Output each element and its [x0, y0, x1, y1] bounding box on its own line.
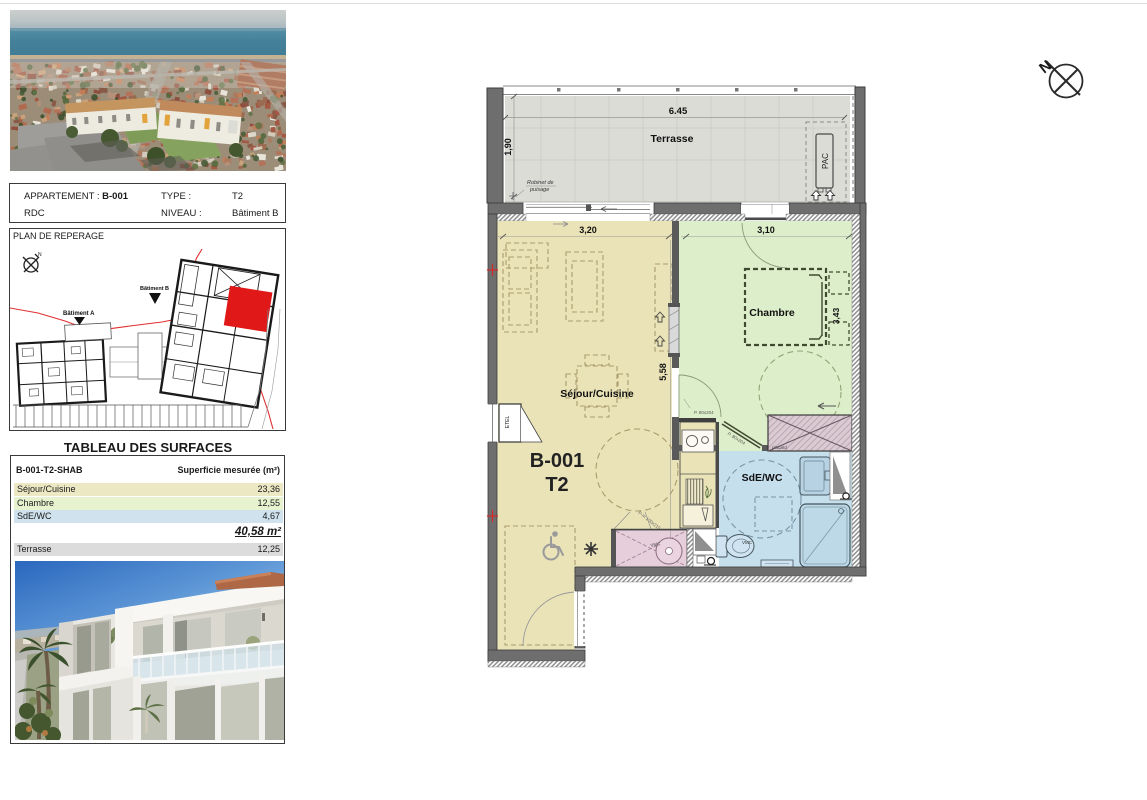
svg-text:5,58: 5,58 [658, 363, 668, 381]
svg-text:PAC: PAC [821, 153, 830, 169]
svg-text:T2: T2 [545, 474, 568, 496]
svg-text:3,10: 3,10 [757, 225, 775, 235]
svg-text:6.45: 6.45 [669, 106, 688, 117]
svg-text:N: N [38, 252, 42, 258]
svg-text:puisage: puisage [529, 187, 549, 193]
svg-text:Chambre: Chambre [749, 307, 795, 319]
svg-text:1,90: 1,90 [503, 138, 513, 156]
svg-text:3,43: 3,43 [831, 307, 841, 324]
svg-text:P. 80x204: P. 80x204 [694, 410, 714, 415]
svg-text:VMC: VMC [742, 540, 753, 545]
svg-text:3,20: 3,20 [579, 225, 597, 235]
svg-text:SdE/WC: SdE/WC [742, 472, 783, 484]
svg-text:Bâtiment A: Bâtiment A [63, 311, 95, 317]
svg-text:ETEL: ETEL [505, 416, 511, 429]
svg-text:placard: placard [772, 445, 787, 450]
svg-text:Séjour/Cuisine: Séjour/Cuisine [560, 388, 634, 400]
svg-text:Bâtiment B: Bâtiment B [140, 286, 169, 292]
svg-text:Robinet de: Robinet de [527, 180, 554, 186]
svg-text:Terrasse: Terrasse [650, 133, 693, 145]
svg-text:N: N [1036, 57, 1055, 77]
svg-text:B-001: B-001 [530, 450, 584, 472]
